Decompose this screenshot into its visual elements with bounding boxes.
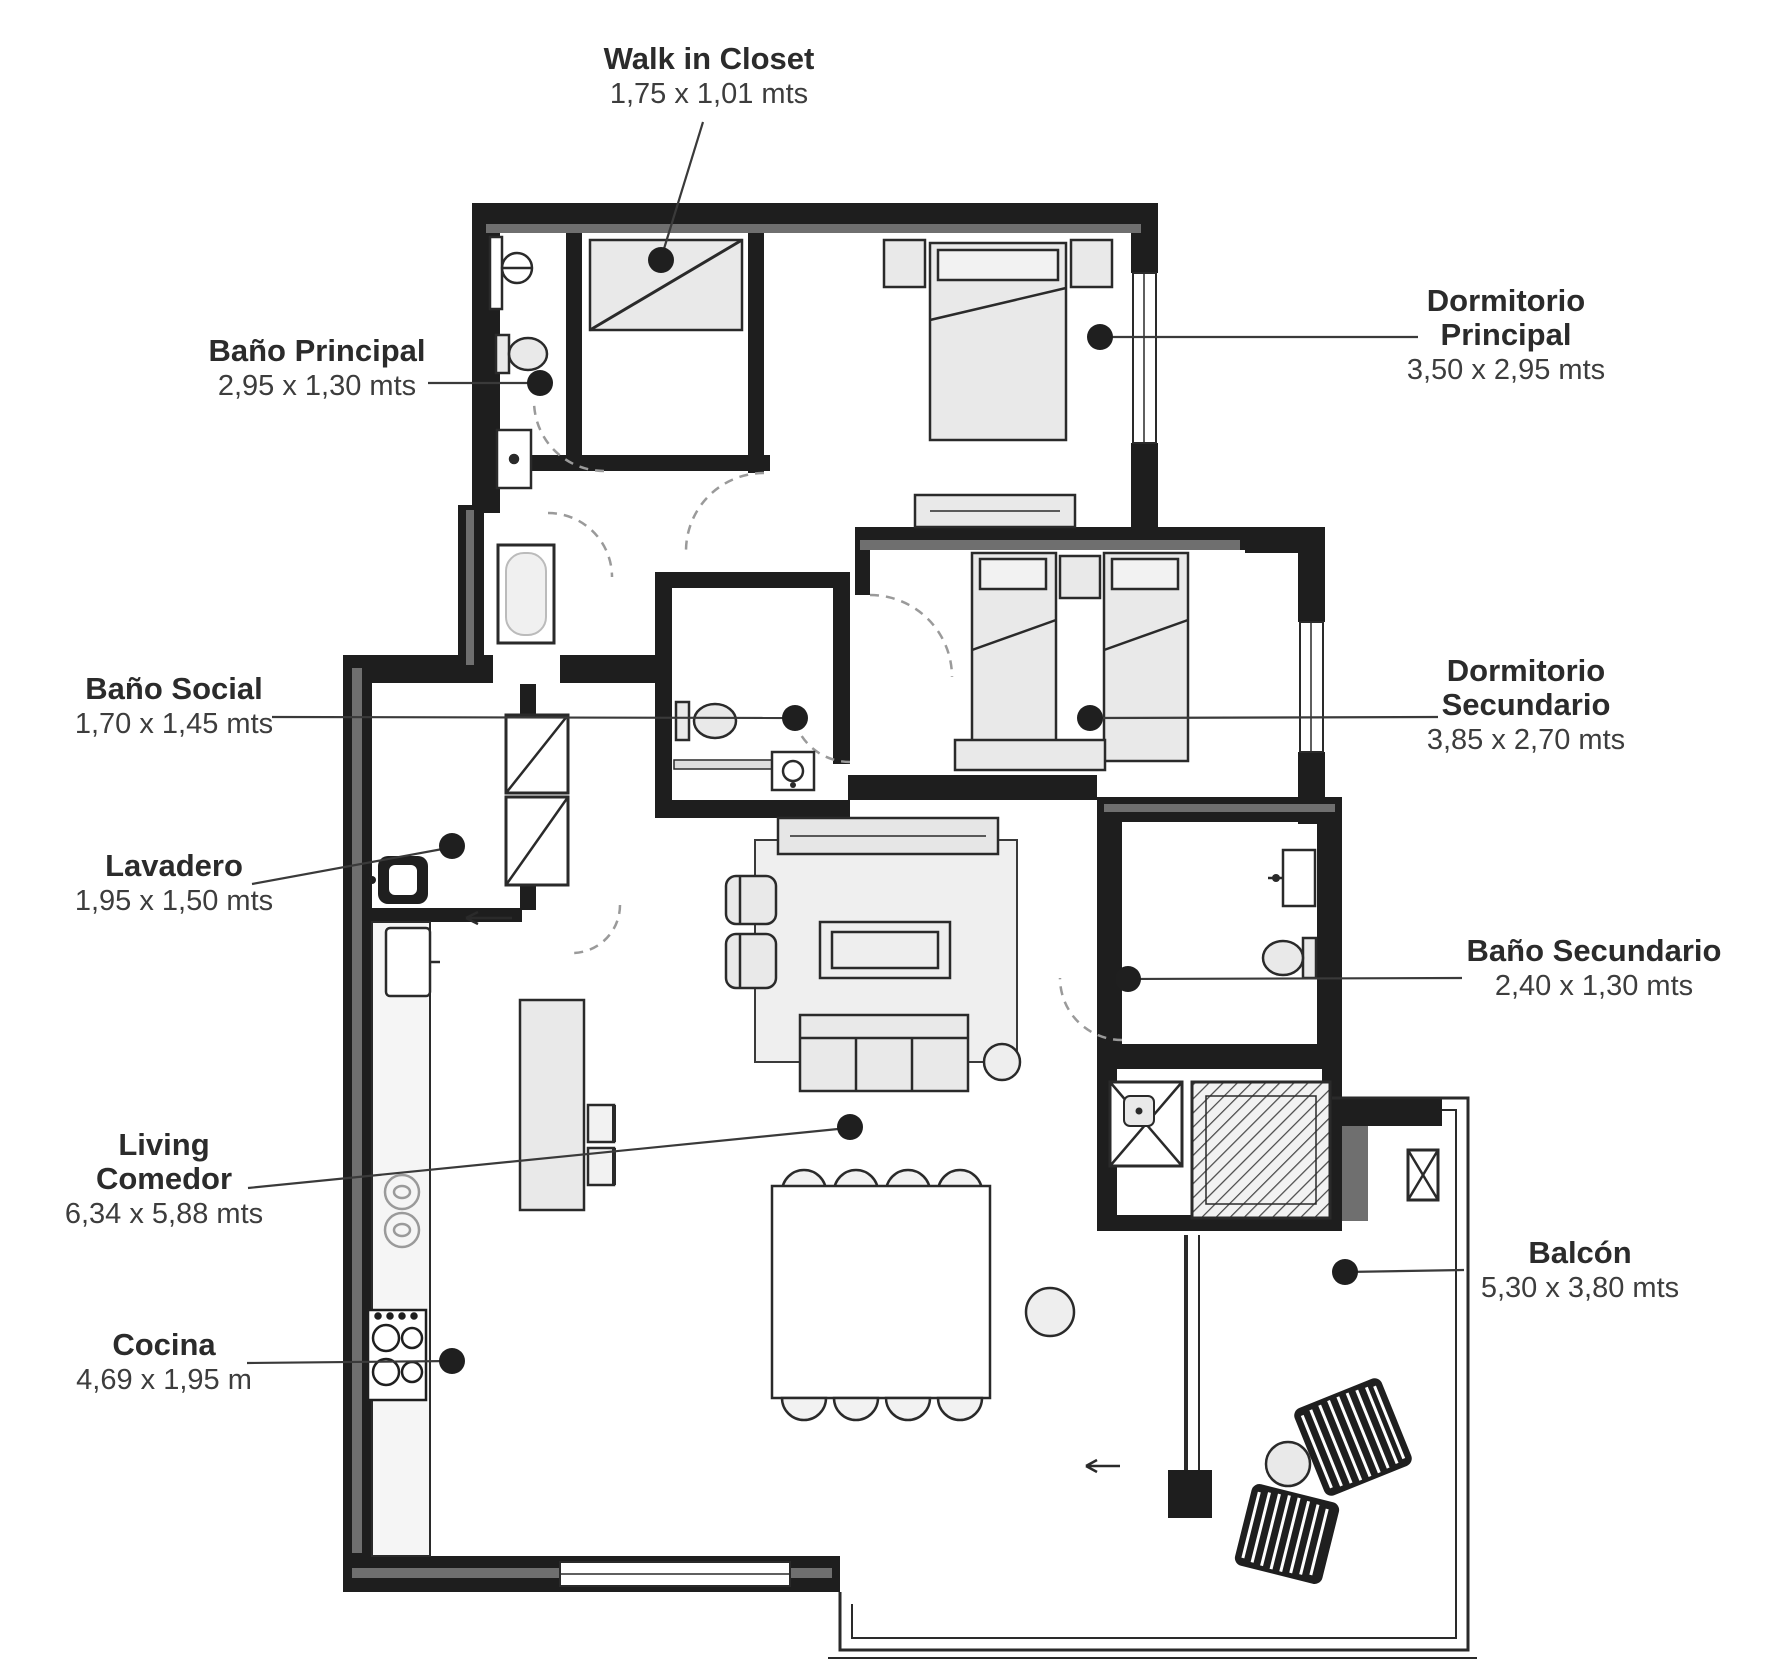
room-name: Dormitorio Secundario [1401,654,1651,722]
room-dimensions: 6,34 x 5,88 mts [65,1198,263,1231]
fridge [386,928,430,996]
room-dimensions: 4,69 x 1,95 m [76,1364,252,1397]
label-bano-social: Baño Social 1,70 x 1,45 mts [54,672,294,741]
label-walk-in-closet: Walk in Closet 1,75 x 1,01 mts [549,42,869,111]
dining-end-chair [1026,1288,1074,1336]
sofa [800,1015,968,1091]
balcony-door-arrow [1086,1460,1120,1472]
room-dimensions: 1,95 x 1,50 mts [75,885,273,918]
bed-principal [884,240,1112,527]
lounge-chair-1 [1292,1376,1414,1498]
room-dimensions: 2,40 x 1,30 mts [1495,970,1693,1003]
bano-secundario-fixtures [1263,850,1316,978]
room-dimensions: 1,75 x 1,01 mts [610,78,808,111]
side-table [984,1044,1020,1080]
balcony-table [1266,1442,1310,1486]
label-bano-secundario: Baño Secundario 2,40 x 1,30 mts [1424,934,1764,1003]
dining-set [772,1170,1074,1420]
balcony-furniture [1086,1376,1414,1586]
label-living-comedor: Living Comedor 6,34 x 5,88 mts [64,1128,264,1232]
water-heater-closet [498,545,554,643]
room-name: Walk in Closet [604,42,815,76]
floor-plan-page: Walk in Closet 1,75 x 1,01 mts Dormitori… [0,0,1777,1668]
label-lavadero: Lavadero 1,95 x 1,50 mts [54,849,294,918]
room-name: Baño Social [85,672,262,706]
room-dimensions: 1,70 x 1,45 mts [75,708,273,741]
room-name: Balcón [1528,1236,1631,1270]
room-dimensions: 3,85 x 2,70 mts [1427,724,1625,757]
floor-plan-drawing [0,0,1777,1668]
label-dormitorio-secundario: Dormitorio Secundario 3,85 x 2,70 mts [1401,654,1651,758]
coffee-table [820,922,950,978]
room-name: Baño Principal [208,334,425,368]
label-bano-principal: Baño Principal 2,95 x 1,30 mts [187,334,447,403]
room-dimensions: 3,50 x 2,95 mts [1407,354,1605,387]
room-name: Cocina [112,1328,215,1362]
balcony-door [1168,1470,1212,1518]
room-name: Living Comedor [64,1128,264,1196]
lounge-chair-2 [1233,1482,1341,1585]
room-name: Lavadero [105,849,243,883]
dining-table [772,1186,990,1398]
dining-chairs-bottom [782,1398,982,1420]
bano-principal-fixtures [490,237,547,488]
room-dimensions: 2,95 x 1,30 mts [218,370,416,403]
kitchen-island [520,1000,584,1210]
lavadero-fixtures [368,715,568,924]
bar-stools [588,1105,614,1185]
kitchen [368,922,614,1556]
label-cocina: Cocina 4,69 x 1,95 m [44,1328,284,1397]
label-dormitorio-principal: Dormitorio Principal 3,50 x 2,95 mts [1386,284,1626,388]
living-room [726,818,1020,1091]
room-name: Dormitorio Principal [1386,284,1626,352]
label-balcon: Balcón 5,30 x 3,80 mts [1430,1236,1730,1305]
elevator [1192,1082,1330,1218]
stove [368,1310,426,1400]
beds-secundario [955,553,1188,770]
room-dimensions: 5,30 x 3,80 mts [1481,1272,1679,1305]
room-name: Baño Secundario [1467,934,1722,968]
